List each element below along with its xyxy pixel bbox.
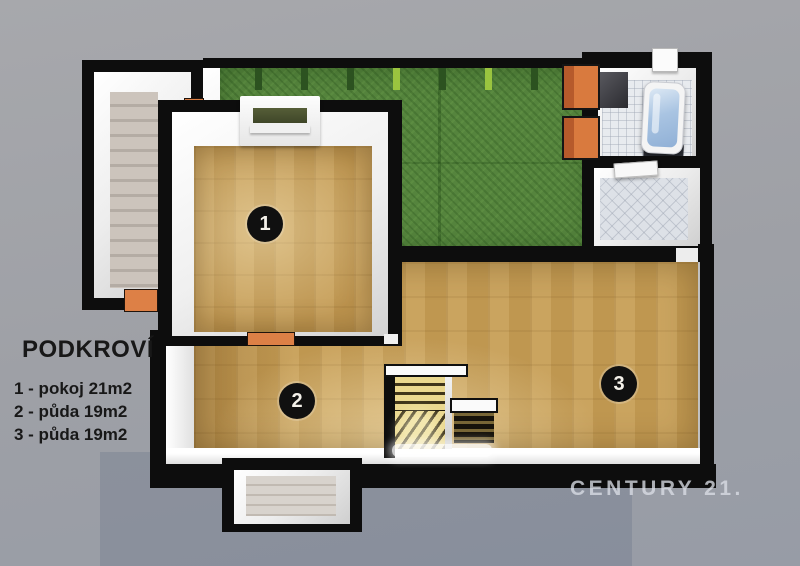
rafter-mark: [347, 68, 354, 90]
stair-floor-glow: [392, 444, 492, 457]
rafter-mark: [531, 68, 538, 90]
stair-newel-wall: [445, 377, 452, 449]
room1-door-threshold: [247, 332, 295, 346]
corridor-floor: [110, 92, 158, 288]
room1-window-sill: [250, 125, 310, 133]
rafter-mark: [301, 68, 308, 90]
legend-title: PODKROVÍ: [22, 336, 154, 364]
floorplan-render: 1 2 3 PODKROVÍ 1 - pokoj 21m2 2 - půda 1…: [0, 0, 800, 566]
staircase: [384, 360, 514, 464]
green-top-wall: [203, 58, 593, 68]
room1-window-opening: [253, 108, 307, 123]
brand-watermark: CENTURY 21.: [570, 477, 744, 501]
bathtub: [640, 81, 690, 167]
legend-item-2: 2 - půda 19m2: [14, 400, 154, 423]
room-marker-1: 1: [247, 206, 283, 242]
stair-top-rail: [384, 364, 468, 377]
legend-item-1: 1 - pokoj 21m2: [14, 377, 154, 400]
stair-under-landing: [454, 413, 494, 443]
legend-item-3: 3 - půda 19m2: [14, 423, 154, 446]
tiled-room-floor: [600, 178, 688, 240]
rafter-mark: [439, 68, 446, 90]
cabinet-upper: [562, 64, 600, 110]
dormer: [222, 458, 362, 532]
legend: PODKROVÍ 1 - pokoj 21m2 2 - půda 19m2 3 …: [14, 336, 154, 446]
wall-junction-face: [384, 334, 398, 344]
room-marker-2: 2: [279, 383, 315, 419]
attic-left-wall-face: [166, 346, 194, 450]
stair-light-glow: [404, 418, 432, 442]
room-marker-2-number: 2: [291, 390, 302, 413]
bathroom-top-door: [652, 48, 678, 72]
room-marker-1-number: 1: [259, 213, 270, 236]
attic-top-wall: [388, 246, 714, 262]
stair-landing-rail: [450, 398, 498, 413]
stair-left-rail: [384, 364, 395, 458]
cabinet-lower: [562, 116, 600, 160]
shower-closet: [598, 72, 628, 108]
room-marker-3: 3: [601, 366, 637, 402]
rafter-mark-bright: [393, 68, 400, 90]
corridor-door-bottom: [124, 289, 158, 312]
rafter-mark: [255, 68, 262, 90]
room1-window: [240, 96, 320, 146]
attic-door-gap: [676, 248, 698, 262]
room1-floor: [194, 146, 372, 332]
attic-right-wall: [698, 244, 714, 480]
room-marker-3-number: 3: [613, 373, 624, 396]
tiled-room-door-leaf: [614, 160, 659, 178]
dormer-floor: [246, 476, 336, 516]
rafter-mark-bright: [485, 68, 492, 90]
